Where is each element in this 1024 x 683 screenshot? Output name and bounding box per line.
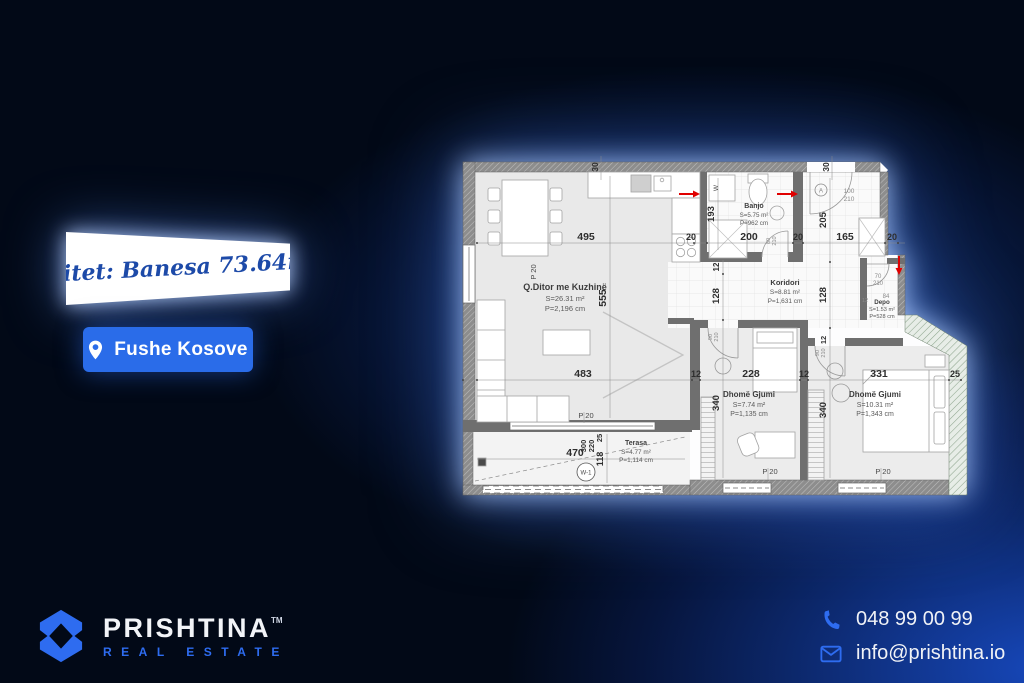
room-bed2-name: Dhomë Gjumi [849,390,901,399]
phone-number: 048 99 00 99 [856,608,973,631]
dim-128b: 128 [818,287,829,303]
ptag-terrace: P 20 [578,411,593,420]
email-address: info@prishtina.io [856,642,1005,665]
room-bed1-name: Dhomë Gjumi [723,390,775,399]
floor-plan: 495 20 200 20 165 20 483 12 228 12 331 2… [455,150,975,500]
tag-w1: W-1 [581,471,593,477]
banner-shape: Shitet: Banesa 73.64m2 [66,232,290,305]
entrance-opening [807,162,855,172]
dim-12b: 12 [799,369,809,379]
poster-background: Shitet: Banesa 73.64m2 Fushe Kosove [0,0,1024,683]
dim-12a: 12 [691,369,701,379]
tag-door-a: A [819,189,823,195]
phone-icon [820,609,842,631]
door-depo-width: 70 [875,274,882,280]
ptag-bed2: P 20 [875,467,890,476]
dim-12d: 12 [819,336,828,344]
location-pin-icon [88,340,103,360]
trademark-symbol: TM [271,616,283,625]
dim-20c: 20 [887,232,897,242]
room-bed1-area: S=7.74 m² [733,402,766,409]
floor-plan-svg: 495 20 200 20 165 20 483 12 228 12 331 2… [455,150,975,500]
dim-200: 200 [740,231,758,243]
dim-118: 118 [595,452,605,467]
room-living-perimeter: P=2,196 cm [545,304,585,313]
room-banjo-name: Banjo [744,203,763,210]
dim-25b: 25 [595,434,604,442]
door-entrance-height: 210 [844,196,855,203]
prishtina-logo-icon [34,604,88,668]
door-bed1-height: 210 [714,332,720,341]
room-banjo-area: S=5.75 m² [740,212,769,219]
room-bed1-perimeter: P=1,135 cm [730,411,768,418]
dim-12c: 12 [712,262,721,271]
dim-20b: 20 [793,232,803,242]
room-depo-area: S=1.53 m² [869,307,895,313]
dim-483: 483 [574,368,592,380]
dim-165: 165 [836,231,854,243]
ptag-left-wall: P 20 [529,264,538,279]
dim-30b: 30 [821,162,831,172]
door-bed2-height: 210 [821,348,827,357]
banner-text: Shitet: Banesa 73.64m2 [30,247,326,288]
dim-128a: 128 [711,288,722,304]
room-koridori-perimeter: P=1,631 cm [768,298,803,305]
listing-banner: Shitet: Banesa 73.64m2 [66,232,290,305]
room-terasa-name: Terasa [625,440,647,447]
room-depo-name: Depo [874,299,890,306]
dim-193: 193 [706,206,717,222]
room-living-name: Q.Ditor me Kuzhinë [523,282,607,292]
location-button[interactable]: Fushe Kosove [83,327,253,372]
dim-300: 300 [579,440,588,453]
room-bed2-area: S=10.31 m² [857,402,894,409]
door-entrance-width: 100 [844,188,855,195]
room-koridori-area: S=8.81 m² [770,289,801,296]
door-banjo-height: 210 [772,236,778,245]
contact-block: 048 99 00 99 info@prishtina.io [820,608,1005,665]
dim-20a: 20 [686,232,696,242]
room-depo-perimeter: P=528 cm [869,314,895,320]
room-terasa-area: S=4.77 m² [621,449,651,456]
room-bed2-perimeter: P=1,343 cm [856,411,894,418]
dim-228: 228 [742,368,760,380]
ptag-bed1: P 20 [762,467,777,476]
dim-30a: 30 [590,162,600,172]
door-depo-height: 210 [873,281,884,287]
room-banjo-perimeter: P=962 cm [740,220,768,227]
dim-25a: 25 [950,369,960,379]
room-living-area: S=26.31 m² [546,294,585,303]
room-terasa-perimeter: P=1,114 cm [619,457,653,464]
dim-340a: 340 [711,395,722,411]
dim-495: 495 [577,231,595,243]
dim-331: 331 [870,368,888,380]
dim-205: 205 [818,211,829,228]
brand-logo: PRISHTINATM REAL ESTATE [34,604,289,668]
room-koridori-name: Koridori [770,278,799,287]
brand-tagline: REAL ESTATE [103,646,289,658]
dim-340b: 340 [818,402,829,418]
brand-text: PRISHTINATM REAL ESTATE [103,615,289,658]
brand-name: PRISHTINATM [103,615,289,642]
location-label: Fushe Kosove [114,339,247,361]
phone-row[interactable]: 048 99 00 99 [820,608,1005,631]
tag-washer: W [713,184,720,191]
dim-12e: 12 [862,298,868,304]
email-row[interactable]: info@prishtina.io [820,642,1005,665]
email-icon [820,645,842,663]
